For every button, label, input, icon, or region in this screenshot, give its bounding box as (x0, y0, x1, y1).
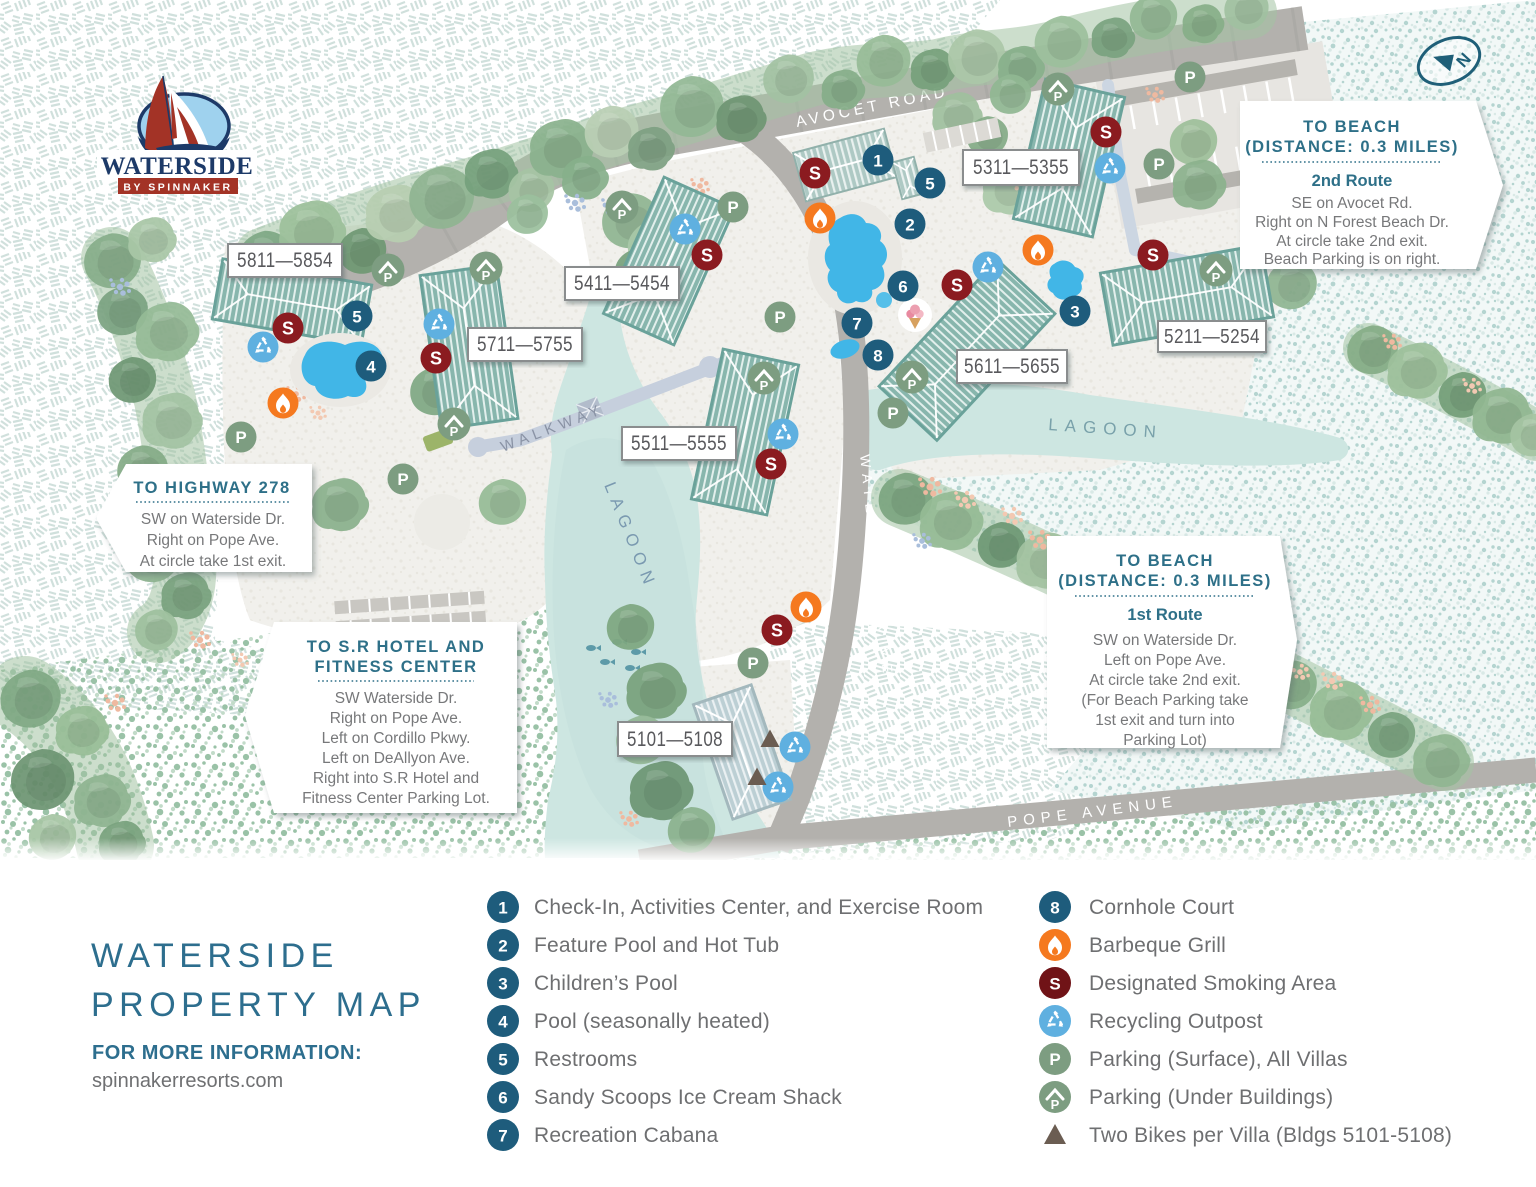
svg-text:PROPERTY MAP: PROPERTY MAP (91, 986, 426, 1024)
svg-text:Cornhole Court: Cornhole Court (1089, 896, 1234, 919)
svg-text:5711—5755: 5711—5755 (477, 333, 573, 356)
svg-text:TO S.R HOTEL AND: TO S.R HOTEL AND (307, 638, 486, 656)
svg-text:Sandy Scoops Ice Cream Shack: Sandy Scoops Ice Cream Shack (534, 1086, 842, 1109)
svg-text:Pool (seasonally heated): Pool (seasonally heated) (534, 1010, 770, 1033)
svg-text:Right on Pope Ave.: Right on Pope Ave. (147, 532, 279, 549)
svg-text:4: 4 (366, 358, 376, 377)
svg-text:Children’s Pool: Children’s Pool (534, 972, 678, 995)
svg-text:5: 5 (498, 1051, 507, 1070)
svg-text:1st Route: 1st Route (1127, 606, 1202, 624)
svg-text:Barbeque Grill: Barbeque Grill (1089, 934, 1226, 957)
svg-text:Recreation Cabana: Recreation Cabana (534, 1124, 718, 1147)
svg-text:Parking Lot): Parking Lot) (1123, 732, 1207, 749)
svg-text:Left on Pope Ave.: Left on Pope Ave. (1104, 652, 1226, 669)
svg-text:2: 2 (905, 216, 914, 235)
svg-text:5411—5454: 5411—5454 (574, 272, 670, 295)
svg-text:3: 3 (498, 975, 507, 994)
svg-text:2nd Route: 2nd Route (1312, 172, 1393, 190)
svg-text:Left on Cordillo Pkwy.: Left on Cordillo Pkwy. (322, 730, 471, 747)
svg-text:2: 2 (498, 937, 507, 956)
svg-text:Right on N Forest Beach Dr.: Right on N Forest Beach Dr. (1255, 214, 1449, 231)
svg-text:5611—5655: 5611—5655 (964, 355, 1060, 378)
svg-text:Check-In, Activities Center, a: Check-In, Activities Center, and Exercis… (534, 896, 983, 919)
svg-text:Beach Parking is on right.: Beach Parking is on right. (1264, 251, 1441, 268)
svg-text:WATERSIDE: WATERSIDE (101, 153, 254, 180)
svg-text:spinnakerresorts.com: spinnakerresorts.com (92, 1070, 283, 1092)
svg-text:5: 5 (352, 308, 361, 327)
svg-text:Recycling Outpost: Recycling Outpost (1089, 1010, 1263, 1033)
svg-text:TO BEACH: TO BEACH (1303, 118, 1401, 136)
svg-text:Designated Smoking Area: Designated Smoking Area (1089, 972, 1337, 995)
svg-text:1: 1 (498, 899, 507, 918)
svg-text:At circle take 2nd exit.: At circle take 2nd exit. (1089, 672, 1241, 689)
svg-text:3: 3 (1070, 303, 1079, 322)
svg-text:FITNESS CENTER: FITNESS CENTER (314, 658, 477, 676)
svg-text:8: 8 (873, 347, 882, 366)
svg-text:4: 4 (498, 1013, 508, 1032)
svg-text:Two Bikes per Villa (Bldgs 510: Two Bikes per Villa (Bldgs 5101-5108) (1089, 1124, 1452, 1147)
svg-text:(DISTANCE: 0.3 MILES): (DISTANCE: 0.3 MILES) (1058, 572, 1272, 590)
svg-text:SW on Waterside Dr.: SW on Waterside Dr. (141, 511, 285, 528)
svg-text:FOR MORE INFORMATION:: FOR MORE INFORMATION: (92, 1042, 362, 1064)
svg-text:(DISTANCE: 0.3 MILES): (DISTANCE: 0.3 MILES) (1245, 138, 1459, 156)
svg-text:BY SPINNAKER: BY SPINNAKER (123, 182, 232, 194)
svg-text:7: 7 (498, 1127, 507, 1146)
svg-text:TO HIGHWAY 278: TO HIGHWAY 278 (133, 479, 290, 497)
svg-text:5: 5 (925, 175, 934, 194)
svg-text:8: 8 (1050, 899, 1059, 918)
svg-text:1st exit and turn into: 1st exit and turn into (1095, 712, 1235, 729)
svg-text:P: P (1049, 1050, 1060, 1069)
svg-text:5511—5555: 5511—5555 (631, 432, 727, 455)
svg-text:Parking (Under Buildings): Parking (Under Buildings) (1089, 1086, 1333, 1109)
svg-text:(For Beach Parking take: (For Beach Parking take (1081, 692, 1248, 709)
svg-text:5101—5108: 5101—5108 (627, 728, 723, 751)
svg-text:Restrooms: Restrooms (534, 1048, 637, 1071)
svg-text:Fitness Center Parking Lot.: Fitness Center Parking Lot. (302, 790, 490, 807)
svg-text:7: 7 (852, 315, 861, 334)
svg-text:Right on Pope Ave.: Right on Pope Ave. (330, 710, 462, 727)
svg-text:1: 1 (873, 152, 882, 171)
svg-text:Feature Pool and Hot Tub: Feature Pool and Hot Tub (534, 934, 779, 957)
svg-text:S: S (1049, 975, 1060, 994)
svg-text:SE on Avocet Rd.: SE on Avocet Rd. (1291, 195, 1412, 212)
svg-text:5211—5254: 5211—5254 (1164, 326, 1260, 348)
svg-text:5311—5355: 5311—5355 (973, 156, 1069, 179)
svg-text:WATERSIDE: WATERSIDE (91, 937, 339, 975)
svg-text:6: 6 (898, 278, 907, 297)
svg-text:SW on Waterside Dr.: SW on Waterside Dr. (1093, 632, 1237, 649)
svg-text:P: P (1051, 1097, 1060, 1112)
svg-text:Left on DeAllyon Ave.: Left on DeAllyon Ave. (322, 750, 470, 767)
svg-text:6: 6 (498, 1089, 507, 1108)
svg-text:At circle take 1st exit.: At circle take 1st exit. (140, 553, 286, 570)
svg-text:5811—5854: 5811—5854 (237, 249, 333, 272)
svg-text:Parking (Surface), All Villas: Parking (Surface), All Villas (1089, 1048, 1348, 1071)
svg-text:TO BEACH: TO BEACH (1116, 552, 1214, 570)
svg-text:Right into S.R Hotel and: Right into S.R Hotel and (313, 770, 479, 787)
svg-text:At circle take 2nd exit.: At circle take 2nd exit. (1276, 233, 1428, 250)
svg-text:SW Waterside Dr.: SW Waterside Dr. (335, 690, 458, 707)
